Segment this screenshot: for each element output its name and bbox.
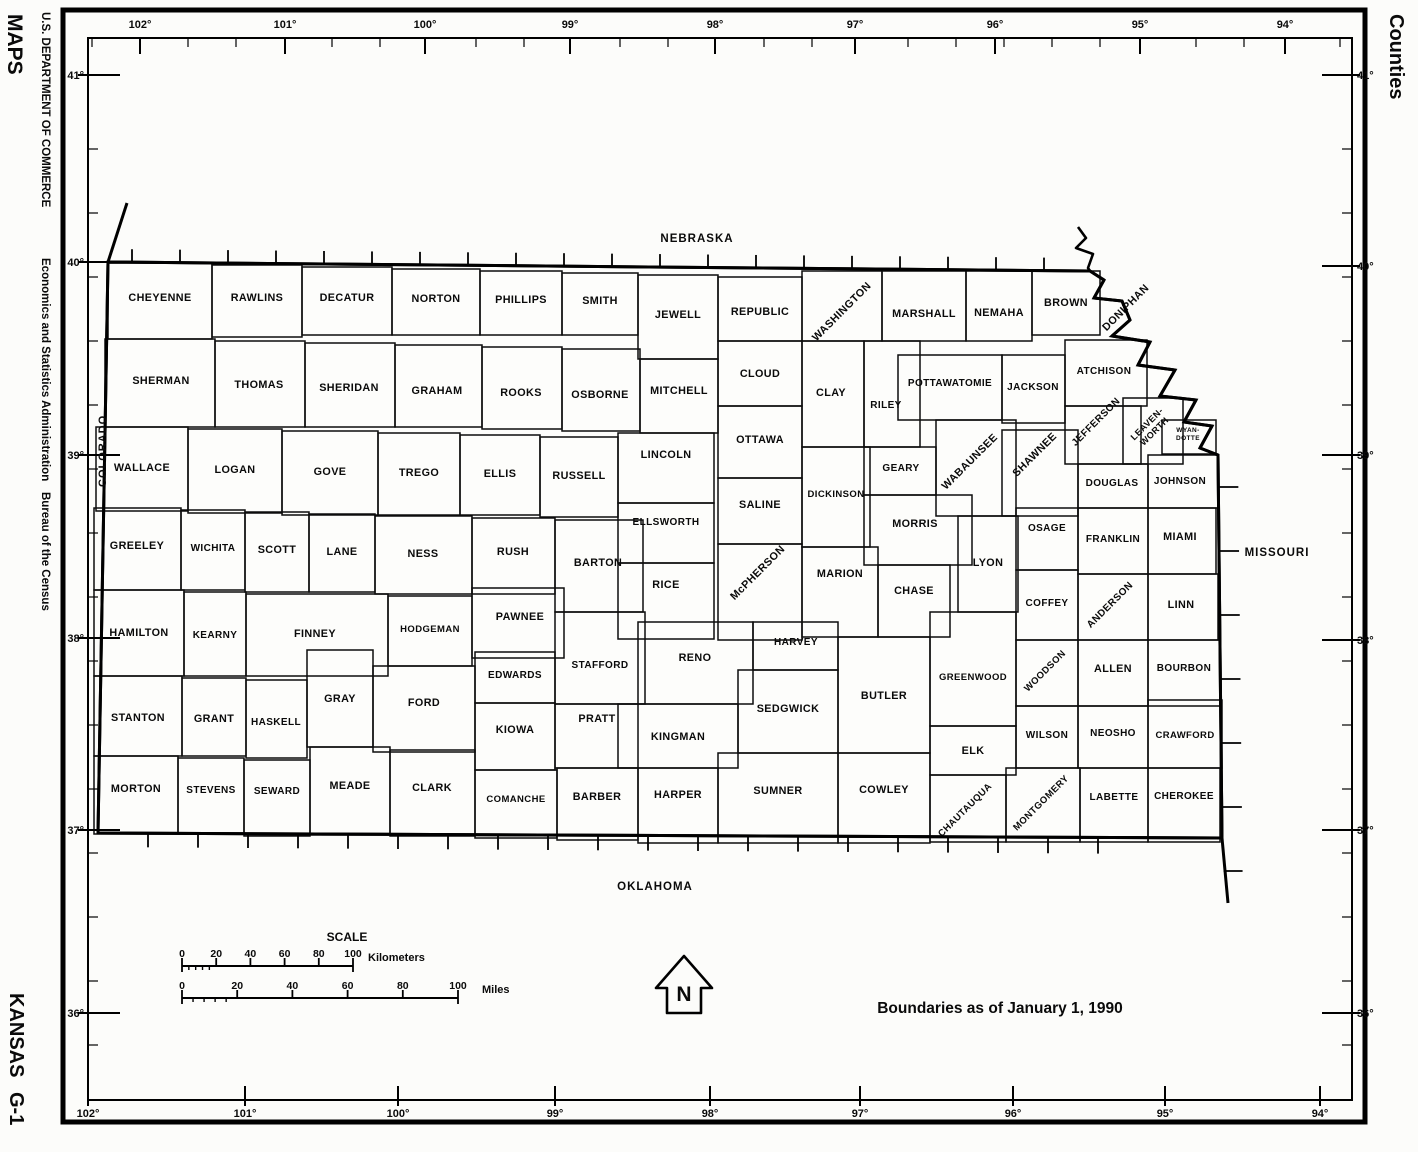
county-label-pratt: PRATT (578, 713, 615, 725)
county-label-stevens: STEVENS (186, 785, 235, 796)
margin-admin: Economics and Statistics Administration (39, 258, 51, 481)
lon-label-bottom: 101° (234, 1108, 257, 1120)
county-label-thomas: THOMAS (234, 379, 283, 391)
county-label-graham: GRAHAM (412, 385, 463, 397)
county-label-kingman: KINGMAN (651, 731, 705, 743)
county-label-phillips: PHILLIPS (495, 294, 547, 306)
county-label-jackson: JACKSON (1007, 382, 1059, 393)
county-label-geary: GEARY (882, 463, 919, 474)
county-label-rooks: ROOKS (500, 387, 542, 399)
county-label-cheyenne: CHEYENNE (128, 292, 191, 304)
county-label-allen: ALLEN (1094, 663, 1132, 675)
county-label-linn: LINN (1168, 599, 1195, 611)
boundaries-note: Boundaries as of January 1, 1990 (877, 1000, 1123, 1017)
lon-label-bottom: 94° (1312, 1108, 1329, 1120)
county-label-lyon: LYON (973, 557, 1004, 569)
lon-label-top: 100° (414, 19, 437, 31)
county-label-greeley: GREELEY (110, 540, 165, 552)
county-label-lane: LANE (327, 546, 358, 558)
scale-mi-unit: Miles (482, 984, 510, 996)
county-label-elk: ELK (962, 745, 985, 757)
county-label-haskell: HASKELL (251, 717, 301, 728)
county-label-wichita: WICHITA (191, 543, 236, 554)
county-label-seward: SEWARD (254, 786, 300, 797)
lon-label-top: 96° (987, 19, 1004, 31)
county-label-ellsworth: ELLSWORTH (633, 517, 700, 528)
county-label-clay: CLAY (816, 387, 846, 399)
county-label-pawnee: PAWNEE (496, 611, 544, 623)
county-label-morris: MORRIS (892, 518, 938, 530)
county-label-sedgwick: SEDGWICK (757, 703, 820, 715)
lon-label-top: 94° (1277, 19, 1294, 31)
county-label-dickinson: DICKINSON (808, 489, 865, 500)
county-label-nemaha: NEMAHA (974, 307, 1024, 319)
county-label-harvey: HARVEY (774, 637, 818, 648)
county-label-cherokee: CHEROKEE (1154, 791, 1214, 802)
county-label-gray: GRAY (324, 693, 356, 705)
county-label-sumner: SUMNER (753, 785, 802, 797)
lon-label-bottom: 97° (852, 1108, 869, 1120)
county-label-osage: OSAGE (1028, 523, 1066, 534)
lon-label-bottom: 100° (387, 1108, 410, 1120)
county-label-norton: NORTON (412, 293, 461, 305)
county-label-riley: RILEY (870, 400, 901, 411)
scale-title: SCALE (327, 930, 368, 944)
margin-dept: U.S. DEPARTMENT OF COMMERCE (39, 12, 51, 208)
county-label-marshall: MARSHALL (892, 308, 956, 320)
county-label-kearny: KEARNY (193, 630, 238, 641)
county-label-marion: MARION (817, 568, 863, 580)
county-label-johnson: JOHNSON (1154, 476, 1206, 487)
county-label-greenwood: GREENWOOD (939, 672, 1007, 683)
county-label-wallace: WALLACE (114, 462, 170, 474)
county-label-osborne: OSBORNE (571, 389, 628, 401)
county-label-logan: LOGAN (215, 464, 256, 476)
county-label-franklin: FRANKLIN (1086, 534, 1140, 545)
county-label-pottawatomie: POTTAWATOMIE (908, 378, 992, 389)
county-label-grant: GRANT (194, 713, 234, 725)
lon-label-bottom: 102° (77, 1108, 100, 1120)
county-label-cloud: CLOUD (740, 368, 780, 380)
scale-tick-label: 40 (287, 980, 299, 992)
county-label-edwards: EDWARDS (488, 670, 542, 681)
margin-series-title: MAPS (3, 14, 26, 75)
lon-label-bottom: 99° (547, 1108, 564, 1120)
county-label-ness: NESS (407, 548, 438, 560)
scale-tick-label: 20 (210, 948, 222, 960)
county-label-atchison: ATCHISON (1077, 366, 1132, 377)
county-label-barber: BARBER (573, 791, 622, 803)
scale-tick-label: 100 (449, 980, 467, 992)
county-label-miami: MIAMI (1163, 531, 1197, 543)
scale-tick-label: 0 (179, 948, 185, 960)
county-label-clark: CLARK (412, 782, 452, 794)
county-label-gove: GOVE (314, 466, 347, 478)
county-label-crawford: CRAWFORD (1155, 730, 1214, 741)
scale-tick-label: 60 (279, 948, 291, 960)
county-label-ottawa: OTTAWA (736, 434, 784, 446)
county-label-comanche: COMANCHE (486, 794, 545, 805)
scale-tick-label: 80 (397, 980, 409, 992)
county-label-bourbon: BOURBON (1157, 663, 1211, 674)
county-label-meade: MEADE (330, 780, 371, 792)
county-label-chase: CHASE (894, 585, 934, 597)
county-label-harper: HARPER (654, 789, 702, 801)
county-label-morton: MORTON (111, 783, 161, 795)
lon-label-bottom: 95° (1157, 1108, 1174, 1120)
scale-tick-label: 100 (344, 948, 362, 960)
county-label-sherman: SHERMAN (132, 375, 189, 387)
margin-bureau: Bureau of the Census (39, 492, 51, 611)
margin-state-name: KANSAS (5, 993, 27, 1077)
county-label-coffey: COFFEY (1026, 598, 1069, 609)
county-label-russell: RUSSELL (552, 470, 605, 482)
county-label-finney: FINNEY (294, 628, 336, 640)
neighbor-label-colorado: COLORADO (97, 415, 109, 487)
county-label-lincoln: LINCOLN (641, 449, 692, 461)
lon-label-top: 101° (274, 19, 297, 31)
county-label-rush: RUSH (497, 546, 529, 558)
county-label-hodgeman: HODGEMAN (400, 624, 460, 635)
county-label-ellis: ELLIS (484, 468, 517, 480)
missouri-river-icon (1076, 227, 1093, 271)
lon-label-bottom: 98° (702, 1108, 719, 1120)
county-label-mitchell: MITCHELL (650, 385, 708, 397)
county-label-ford: FORD (408, 697, 440, 709)
lon-label-bottom: 96° (1005, 1108, 1022, 1120)
map-sheet: CHEYENNERAWLINSDECATURNORTONPHILLIPSSMIT… (0, 0, 1418, 1152)
county-label-cowley: COWLEY (859, 784, 909, 796)
county-label-brown: BROWN (1044, 297, 1088, 309)
county-label-kiowa: KIOWA (496, 724, 535, 736)
county-label-wyan: WYAN-DOTTE (1176, 427, 1200, 442)
lon-label-top: 97° (847, 19, 864, 31)
county-label-scott: SCOTT (258, 544, 297, 556)
county-label-stafford: STAFFORD (572, 660, 629, 671)
county-label-barton: BARTON (574, 557, 622, 569)
county-label-republic: REPUBLIC (731, 306, 789, 318)
county-label-labette: LABETTE (1090, 792, 1139, 803)
scale-tick-label: 80 (313, 948, 325, 960)
county-label-jewell: JEWELL (655, 309, 701, 321)
scale-tick-label: 40 (245, 948, 257, 960)
margin-sheet-id: G-1 (5, 1092, 27, 1125)
county-label-decatur: DECATUR (320, 292, 375, 304)
county-label-butler: BUTLER (861, 690, 907, 702)
county-label-saline: SALINE (739, 499, 781, 511)
county-label-sheridan: SHERIDAN (319, 382, 379, 394)
lon-label-top: 98° (707, 19, 724, 31)
county-label-reno: RENO (679, 652, 712, 664)
scale-km-unit: Kilometers (368, 952, 425, 964)
county-label-wilson: WILSON (1026, 730, 1068, 741)
colorado-border-extension (108, 203, 127, 262)
neighbor-label-missouri: MISSOURI (1245, 547, 1310, 559)
kansas-county-map: CHEYENNERAWLINSDECATURNORTONPHILLIPSSMIT… (0, 0, 1418, 1152)
county-label-rice: RICE (652, 579, 679, 591)
scale-tick-label: 60 (342, 980, 354, 992)
county-label-neosho: NEOSHO (1090, 728, 1136, 739)
north-arrow-label: N (676, 983, 691, 1006)
county-label-rawlins: RAWLINS (231, 292, 284, 304)
county-label-douglas: DOUGLAS (1086, 478, 1139, 489)
neighbor-label-oklahoma: OKLAHOMA (617, 881, 693, 893)
scale-tick-label: 20 (231, 980, 243, 992)
scale-tick-label: 0 (179, 980, 185, 992)
margin-map-subject: Counties (1385, 14, 1407, 100)
neighbor-label-nebraska: NEBRASKA (660, 233, 733, 245)
lon-label-top: 102° (129, 19, 152, 31)
county-label-stanton: STANTON (111, 712, 165, 724)
county-label-trego: TREGO (399, 467, 439, 479)
county-label-smith: SMITH (582, 295, 618, 307)
lon-label-top: 99° (562, 19, 579, 31)
lon-label-top: 95° (1132, 19, 1149, 31)
